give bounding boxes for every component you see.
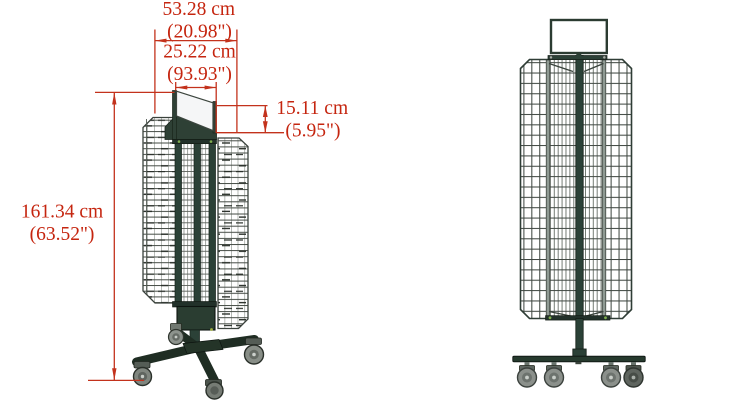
svg-text:(5.95"): (5.95") [285, 121, 340, 142]
svg-text:53.28 cm: 53.28 cm [163, 0, 236, 20]
svg-text:(20.98"): (20.98") [167, 21, 232, 42]
svg-text:(63.52"): (63.52") [30, 224, 95, 245]
svg-text:161.34 cm: 161.34 cm [21, 202, 103, 223]
svg-text:(93.93"): (93.93") [167, 64, 232, 85]
svg-text:15.11 cm: 15.11 cm [276, 98, 348, 119]
svg-text:25.22 cm: 25.22 cm [163, 42, 236, 63]
